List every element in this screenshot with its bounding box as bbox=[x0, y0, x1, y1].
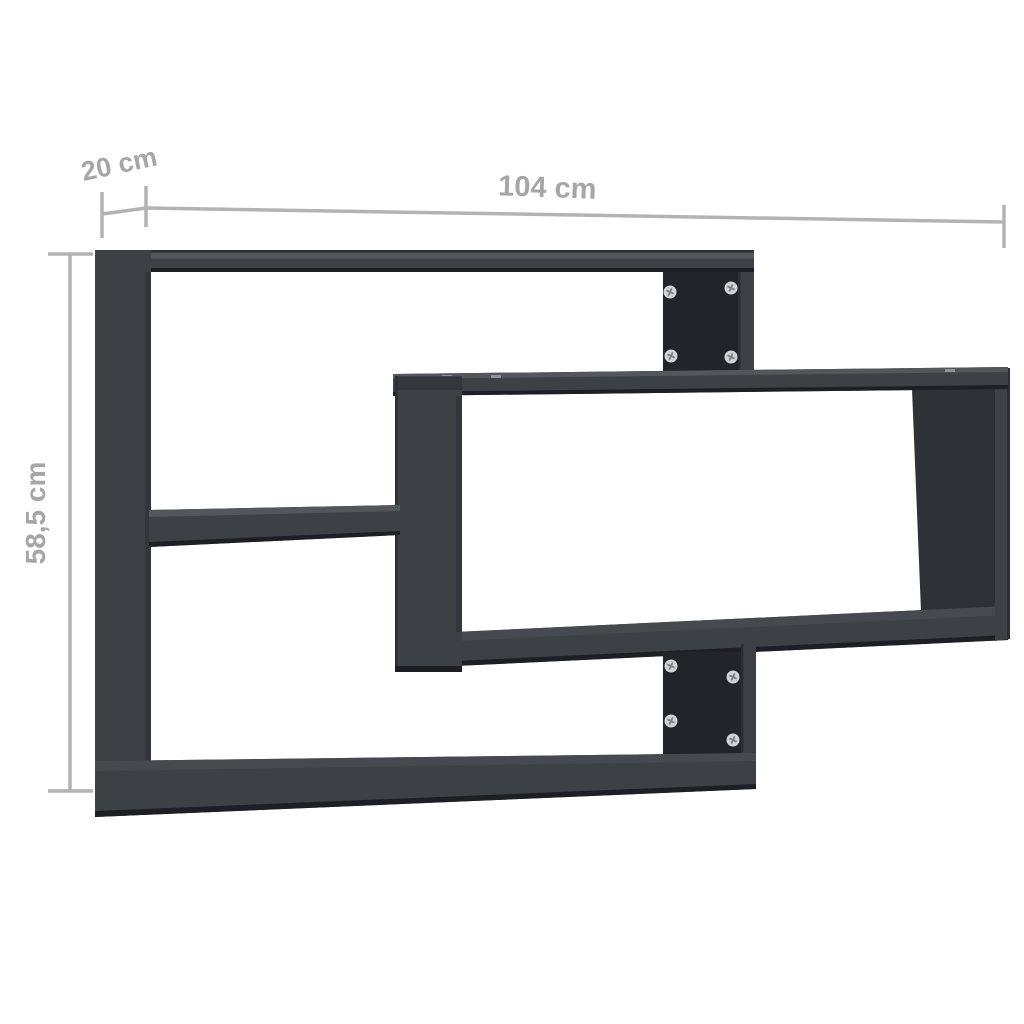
screw-icon bbox=[725, 351, 738, 364]
shelf-bottom-board bbox=[95, 753, 756, 817]
dimension-line bbox=[102, 208, 1004, 222]
depth-dimension-label: 20 cm bbox=[79, 142, 160, 187]
height-dimension: 58,5 cm bbox=[20, 254, 93, 791]
screw-icon bbox=[725, 282, 738, 295]
panel-top-cap bbox=[395, 377, 462, 390]
screw-icon bbox=[664, 286, 677, 299]
product-diagram-canvas: 20 cm 104 cm 58,5 cm bbox=[0, 0, 1024, 1024]
screw-icon bbox=[665, 350, 678, 363]
screw-icon bbox=[727, 734, 740, 747]
shelf-divider-panel bbox=[395, 376, 462, 672]
screw-icon bbox=[727, 671, 740, 684]
screw-head-top-mark bbox=[945, 369, 955, 372]
wall-mount-panel-upper bbox=[663, 271, 740, 378]
shelf-left-panel bbox=[95, 250, 151, 812]
shelf-right-panel-inner-face bbox=[912, 385, 998, 632]
screw-head-top-mark bbox=[491, 375, 501, 378]
depth-dimension: 20 cm bbox=[79, 142, 160, 187]
shelf-top-board bbox=[95, 250, 754, 272]
shelf-illustration bbox=[95, 250, 1010, 817]
board-bottom-edge bbox=[95, 268, 754, 272]
panel-front-face bbox=[395, 376, 462, 672]
shelf-mid-left-board bbox=[149, 505, 400, 547]
board-back-edge bbox=[95, 250, 754, 253]
panel-inner-edge bbox=[456, 396, 462, 632]
board-top-face bbox=[95, 253, 754, 259]
shelf-right-panel bbox=[995, 368, 1010, 641]
member-left-edge bbox=[738, 271, 741, 376]
shelf-lower-right-member bbox=[741, 644, 756, 762]
wall-mount-panel-lower bbox=[663, 652, 745, 760]
shelf-upper-right-member bbox=[738, 271, 754, 376]
height-dimension-label: 58,5 cm bbox=[20, 462, 51, 565]
panel-bottom-edge bbox=[395, 666, 462, 672]
width-dimension: 104 cm bbox=[498, 170, 597, 205]
panel-outer-edge bbox=[1007, 368, 1010, 639]
panel-front-face bbox=[95, 250, 151, 812]
width-dimension-label: 104 cm bbox=[498, 170, 597, 205]
screw-icon bbox=[665, 660, 678, 673]
wall-shelf-dimension-diagram: 20 cm 104 cm 58,5 cm bbox=[0, 0, 1024, 1024]
screw-icon bbox=[665, 715, 678, 728]
member-left-edge bbox=[741, 644, 744, 762]
